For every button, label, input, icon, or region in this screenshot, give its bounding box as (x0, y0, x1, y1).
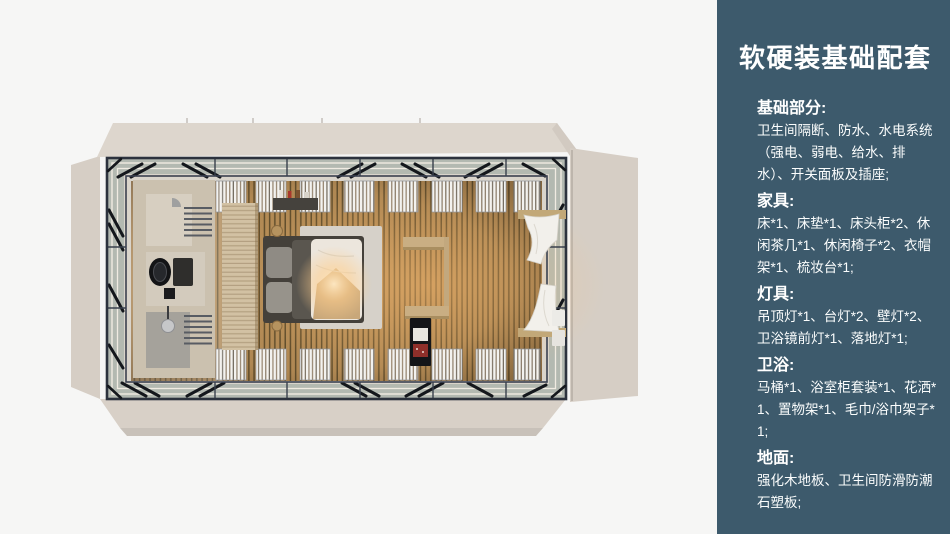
spec-panel: 软硬装基础配套 基础部分: 卫生间隔断、防水、水电系统（强电、弱电、给水、排水）… (717, 0, 950, 534)
decor-bottle (305, 192, 309, 198)
room-render-area (0, 0, 717, 534)
section-heading-bathroom: 卫浴: (757, 355, 938, 377)
roof-ticks (187, 118, 420, 123)
decor-bottle (279, 190, 283, 198)
storage-basket (272, 226, 283, 237)
partition-shadow (255, 203, 258, 350)
section-heading-flooring: 地面: (757, 448, 938, 470)
shower-head (162, 320, 175, 333)
bottom-wall-panel (100, 399, 566, 428)
decor-bottle (288, 191, 292, 198)
page: 软硬装基础配套 基础部分: 卫生间隔断、防水、水电系统（强电、弱电、给水、排水）… (0, 0, 950, 534)
storage-basket (272, 321, 282, 331)
shelf-post (444, 237, 449, 316)
section-heading-lighting: 灯具: (757, 284, 938, 306)
wardrobe-partition (222, 203, 258, 350)
section-body-lighting: 吊顶灯*1、台灯*2、壁灯*2、卫浴镜前灯*1、落地灯*1; (757, 306, 938, 350)
section-body-furniture: 床*1、床垫*1、床头柜*2、休闲茶几*1、休闲椅子*2、衣帽架*1、梳妆台*1… (757, 213, 938, 279)
spec-section-lighting: 灯具: 吊顶灯*1、台灯*2、壁灯*2、卫浴镜前灯*1、落地灯*1; (757, 284, 938, 350)
minibar-contents (413, 344, 428, 357)
bathroom (133, 180, 215, 378)
sill-box (552, 330, 565, 346)
section-body-bathroom: 马桶*1、浴室柜套装*1、花洒*1、置物架*1、毛巾/浴巾架子*1; (757, 377, 938, 443)
section-heading-basics: 基础部分: (757, 98, 938, 120)
spec-section-flooring: 地面: 强化木地板、卫生间防滑防潮石塑板; (757, 448, 938, 514)
minibar-cabinet (410, 318, 431, 366)
floorplan-render (0, 0, 717, 534)
panel-title: 软硬装基础配套 (739, 42, 938, 74)
sill-box (552, 310, 565, 326)
vanity-counter (173, 258, 193, 286)
spec-section-bathroom: 卫浴: 马桶*1、浴室柜套装*1、花洒*1、置物架*1、毛巾/浴巾架子*1; (757, 355, 938, 443)
roof-panel (97, 123, 576, 157)
spec-section-furniture: 家具: 床*1、床垫*1、床头柜*2、休闲茶几*1、休闲椅子*2、衣帽架*1、梳… (757, 191, 938, 279)
decor-bottle (296, 190, 300, 198)
spec-section-basics: 基础部分: 卫生间隔断、防水、水电系统（强电、弱电、给水、排水）、开关面板及插座… (757, 98, 938, 186)
pillow (266, 282, 293, 313)
section-body-flooring: 强化木地板、卫生间防滑防潮石塑板; (757, 470, 938, 514)
bed-lamp-glow (296, 246, 372, 322)
section-heading-furniture: 家具: (757, 191, 938, 213)
section-body-basics: 卫生间隔断、防水、水电系统（强电、弱电、给水、排水）、开关面板及插座; (757, 120, 938, 186)
bottom-panel-lip (120, 428, 543, 436)
sink-basin (154, 263, 167, 282)
left-wall-panel (71, 156, 100, 399)
minibar-label (413, 328, 428, 341)
double-bed (263, 226, 382, 329)
vanity-stool (164, 288, 175, 299)
pillow (266, 247, 293, 278)
